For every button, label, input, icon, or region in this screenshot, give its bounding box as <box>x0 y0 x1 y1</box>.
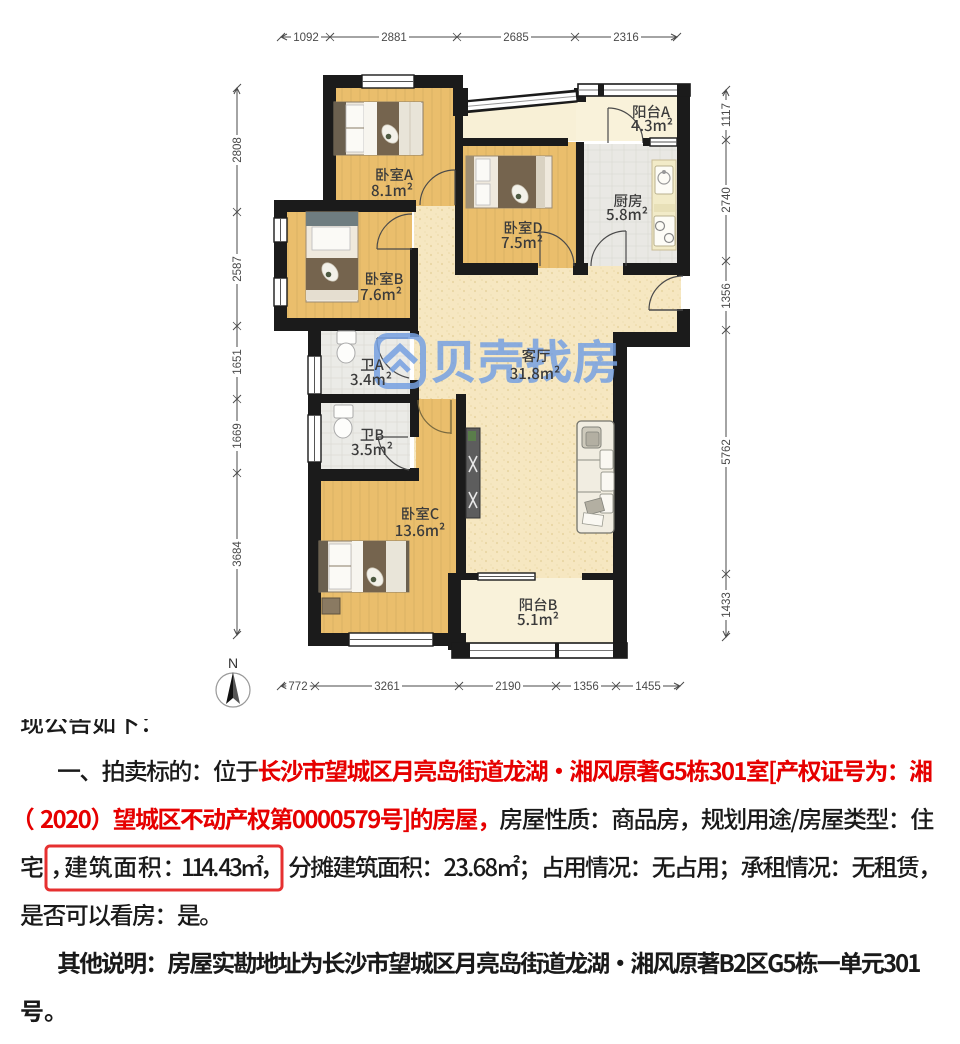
svg-text:2881: 2881 <box>381 32 407 44</box>
svg-text:1669: 1669 <box>232 423 244 449</box>
svg-text:2740: 2740 <box>721 187 733 213</box>
svg-text:2190: 2190 <box>495 681 521 693</box>
svg-text:1433: 1433 <box>721 592 733 618</box>
svg-text:772: 772 <box>288 681 307 693</box>
svg-text:N: N <box>228 655 238 671</box>
svg-text:1455: 1455 <box>635 681 661 693</box>
svg-text:2316: 2316 <box>613 32 639 44</box>
svg-text:1356: 1356 <box>573 681 599 693</box>
svg-text:2685: 2685 <box>503 32 529 44</box>
svg-text:2808: 2808 <box>232 137 244 163</box>
svg-text:3684: 3684 <box>232 541 244 567</box>
svg-text:1651: 1651 <box>232 349 244 375</box>
svg-text:1117: 1117 <box>721 103 733 127</box>
svg-text:3261: 3261 <box>374 681 400 693</box>
svg-text:5762: 5762 <box>721 439 733 465</box>
svg-text:1092: 1092 <box>293 32 319 44</box>
svg-text:1356: 1356 <box>721 283 733 309</box>
svg-text:2587: 2587 <box>232 256 244 282</box>
